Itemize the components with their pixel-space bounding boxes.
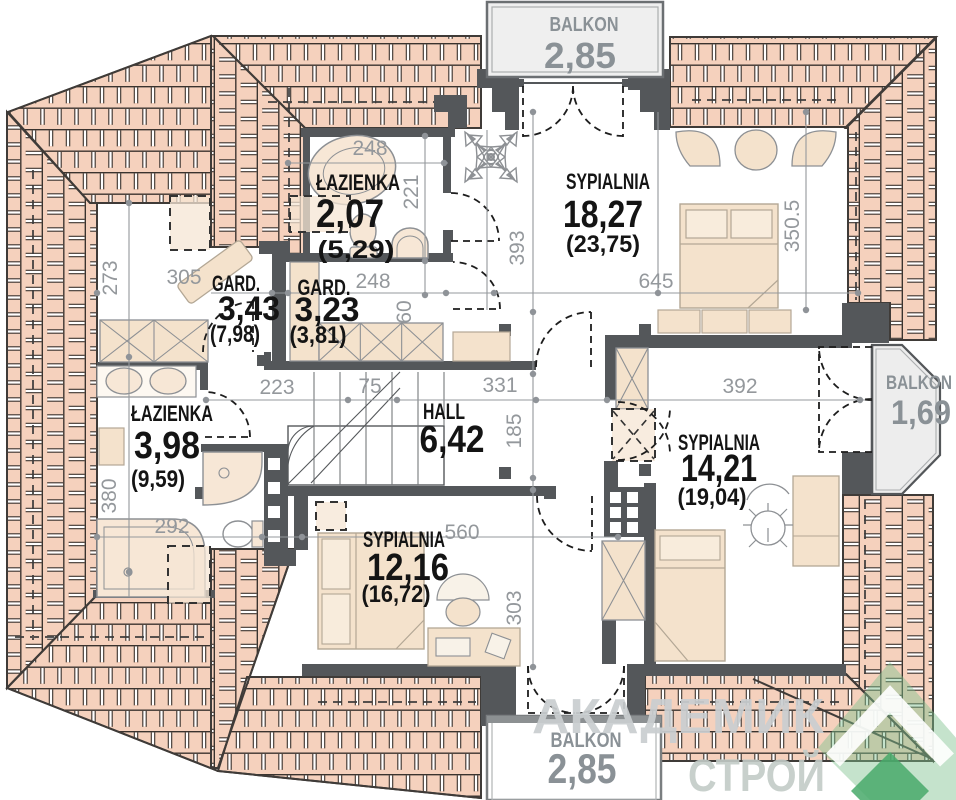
svg-text:380: 380 [98, 478, 121, 513]
svg-text:303: 303 [503, 590, 526, 625]
svg-text:АКАДЕМИК: АКАДЕМИК [532, 690, 824, 744]
svg-text:(3,81): (3,81) [290, 322, 347, 349]
svg-text:BALKON: BALKON [886, 373, 952, 394]
svg-text:BALKON: BALKON [550, 14, 619, 36]
svg-text:(5,29): (5,29) [318, 236, 395, 264]
svg-text:(19,04): (19,04) [678, 484, 747, 511]
svg-text:1,69: 1,69 [891, 394, 951, 432]
svg-text:221: 221 [400, 174, 423, 209]
svg-text:(16,72): (16,72) [362, 581, 431, 608]
svg-text:350.5: 350.5 [781, 200, 804, 253]
svg-text:392: 392 [722, 375, 757, 398]
svg-text:248: 248 [355, 270, 390, 293]
svg-text:2,85: 2,85 [544, 35, 616, 76]
svg-text:331: 331 [482, 374, 517, 397]
svg-text:560: 560 [444, 521, 479, 544]
svg-text:6,42: 6,42 [420, 419, 485, 461]
svg-text:273: 273 [99, 260, 122, 295]
svg-text:(23,75): (23,75) [566, 231, 640, 258]
svg-text:(9,59): (9,59) [131, 466, 185, 493]
svg-text:75: 75 [358, 375, 381, 398]
svg-text:18,27: 18,27 [563, 194, 643, 236]
svg-text:SYPIALNIA: SYPIALNIA [566, 169, 650, 194]
svg-text:2,85: 2,85 [548, 745, 617, 792]
svg-text:2,07: 2,07 [316, 192, 384, 236]
svg-text:185: 185 [503, 413, 526, 448]
svg-text:3,98: 3,98 [134, 425, 200, 467]
svg-text:(7,98): (7,98) [210, 321, 260, 348]
svg-text:60: 60 [393, 300, 416, 323]
svg-text:645: 645 [638, 270, 673, 293]
svg-text:223: 223 [259, 376, 294, 399]
svg-text:248: 248 [352, 137, 387, 160]
svg-text:СТРОЙ: СТРОЙ [688, 750, 825, 800]
svg-text:305: 305 [166, 266, 201, 289]
svg-text:393: 393 [506, 230, 529, 265]
svg-text:ŁAZIENKA: ŁAZIENKA [131, 401, 213, 426]
svg-text:292: 292 [154, 515, 189, 538]
